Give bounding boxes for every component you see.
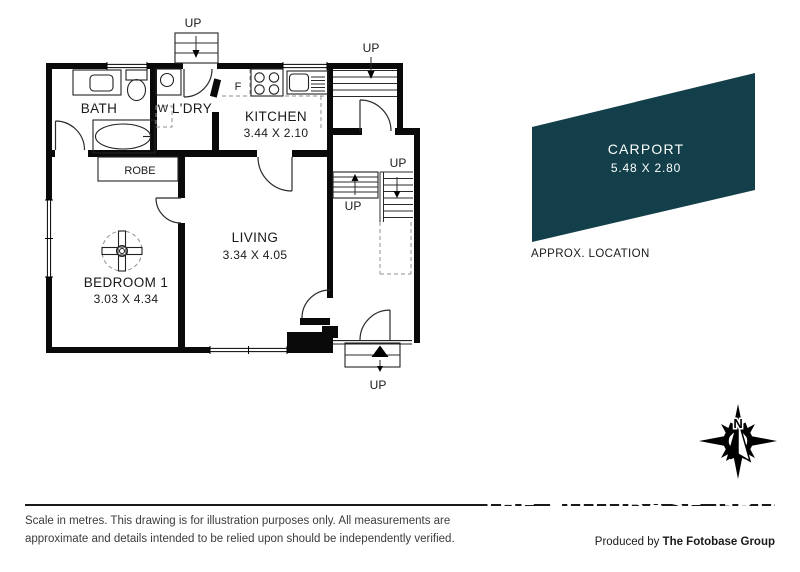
window-kitchen	[283, 62, 327, 70]
disclaimer-line1: Scale in metres. This drawing is for ill…	[25, 513, 455, 531]
vanity	[73, 70, 121, 95]
room-label-laundry: L'DRY	[172, 101, 212, 116]
carport: CARPORT 5.48 X 2.80 APPROX. LOCATION	[531, 73, 755, 260]
room-dims-living: 3.34 X 4.05	[223, 248, 288, 262]
room-label-bath: BATH	[81, 101, 118, 116]
door-hall-living	[300, 290, 330, 325]
up-label: UP	[363, 41, 380, 55]
watermark-text: THE FOTOBASE GROUP	[482, 491, 800, 518]
bathtub	[93, 120, 155, 153]
room-bedroom1: ROBE BEDROOM 1 3.03 X 4.34	[84, 157, 178, 306]
carport-shape	[532, 73, 755, 242]
carport-dims: 5.48 X 2.80	[611, 161, 681, 175]
disclaimer-line2: approximate and details intended to be r…	[25, 531, 455, 549]
door-bath	[56, 121, 85, 150]
up-label: UP	[345, 199, 362, 213]
room-label-living: LIVING	[232, 230, 279, 245]
window-bedroom-left	[45, 200, 53, 277]
room-dims-bedroom1: 3.03 X 4.34	[94, 292, 159, 306]
door-front-entry	[360, 310, 390, 340]
compass-north-label: N	[733, 416, 742, 431]
room-living: LIVING 3.34 X 4.05	[223, 230, 288, 262]
window-living-bottom	[210, 346, 287, 354]
credit-prefix: Produced by	[595, 536, 663, 548]
door-bedroom	[156, 198, 181, 223]
stairs-top-left-entry: UP	[175, 16, 218, 63]
up-label: UP	[185, 16, 202, 30]
up-label: UP	[390, 156, 407, 170]
room-label-kitchen: KITCHEN	[245, 109, 307, 124]
stairs-landing: UP UP	[333, 156, 413, 274]
credit-brand: The Fotobase Group	[663, 536, 775, 548]
toilet	[126, 70, 147, 101]
floorplan-page: UP UP UP UP UP	[0, 0, 800, 572]
washing-machine	[156, 69, 181, 95]
up-label: UP	[370, 378, 387, 392]
carport-label: CARPORT	[608, 141, 685, 157]
window-bath	[107, 62, 147, 70]
door-laundry-entry	[184, 69, 212, 97]
floorplan-drawing: UP UP UP UP UP	[0, 0, 800, 572]
room-label-bedroom1: BEDROOM 1	[84, 275, 169, 290]
ceiling-fan-icon	[102, 231, 142, 271]
robe-closet: ROBE	[98, 157, 178, 181]
fridge-label: F	[235, 81, 242, 93]
front-entry-steps: UP	[345, 343, 400, 392]
room-kitchen: F KITCHEN 3.44 X 2.10	[222, 69, 328, 140]
disclaimer: Scale in metres. This drawing is for ill…	[25, 513, 455, 548]
sink	[287, 71, 328, 94]
room-dims-kitchen: 3.44 X 2.10	[244, 126, 309, 140]
washer-label: W	[158, 103, 169, 115]
carport-note: APPROX. LOCATION	[531, 248, 650, 260]
door-stairwell	[360, 100, 391, 131]
producer-credit: Produced by The Fotobase Group	[595, 536, 775, 548]
door-kitchen-living	[258, 157, 292, 191]
compass-icon: N	[699, 404, 777, 479]
room-bath: BATH	[73, 70, 155, 153]
robe-label: ROBE	[124, 165, 155, 177]
cooktop	[251, 69, 283, 96]
